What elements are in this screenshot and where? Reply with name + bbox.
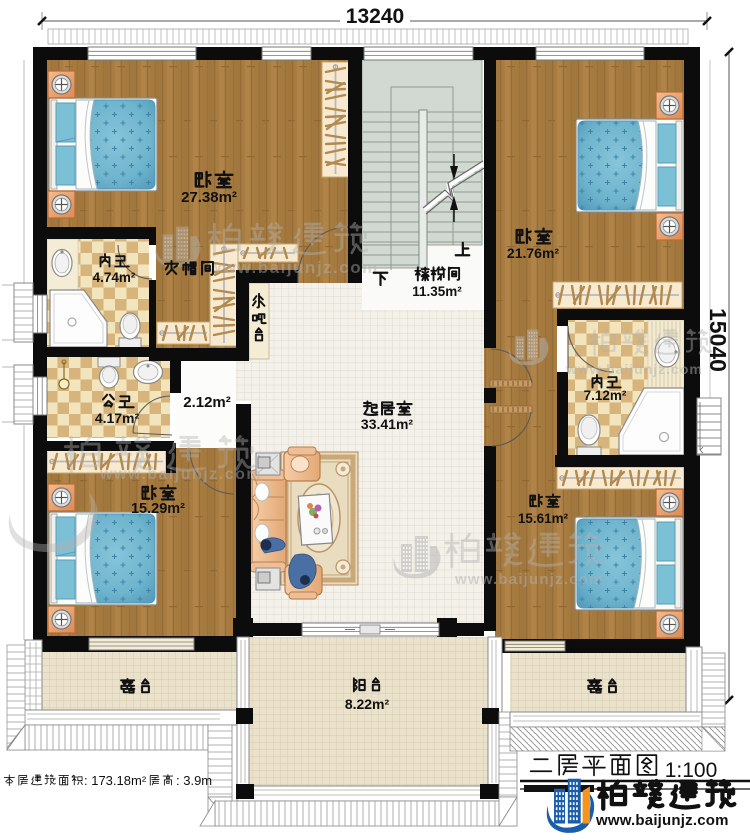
svg-text:www.baijunjz.com: www.baijunjz.com xyxy=(595,812,729,829)
svg-text:7.12m²: 7.12m² xyxy=(584,388,627,403)
svg-text:www.baijunjz.com: www.baijunjz.com xyxy=(207,258,379,277)
svg-text:8.22m²: 8.22m² xyxy=(345,696,390,712)
svg-text:13240: 13240 xyxy=(346,5,404,28)
svg-text:: 3.9m: : 3.9m xyxy=(176,773,212,788)
svg-text:4.74m²: 4.74m² xyxy=(93,270,136,285)
svg-text:www.baijunjz.com: www.baijunjz.com xyxy=(454,571,604,588)
svg-text:1:100: 1:100 xyxy=(665,759,718,782)
svg-text:11.35m²: 11.35m² xyxy=(412,284,462,299)
svg-text:15040: 15040 xyxy=(705,308,731,372)
svg-text:www.baijunjz.com: www.baijunjz.com xyxy=(565,361,703,377)
svg-text:www.baijunjz.com: www.baijunjz.com xyxy=(99,466,262,483)
svg-text:15.61m²: 15.61m² xyxy=(518,511,569,526)
svg-text:27.38m²: 27.38m² xyxy=(181,189,237,206)
svg-text:4.17m²: 4.17m² xyxy=(95,410,140,426)
svg-text:21.76m²: 21.76m² xyxy=(507,245,559,261)
svg-text:: 173.18m²: : 173.18m² xyxy=(84,773,147,788)
svg-text:2.12m²: 2.12m² xyxy=(183,394,231,411)
svg-text:33.41m²: 33.41m² xyxy=(361,416,413,432)
svg-text:15.29m²: 15.29m² xyxy=(131,501,185,517)
